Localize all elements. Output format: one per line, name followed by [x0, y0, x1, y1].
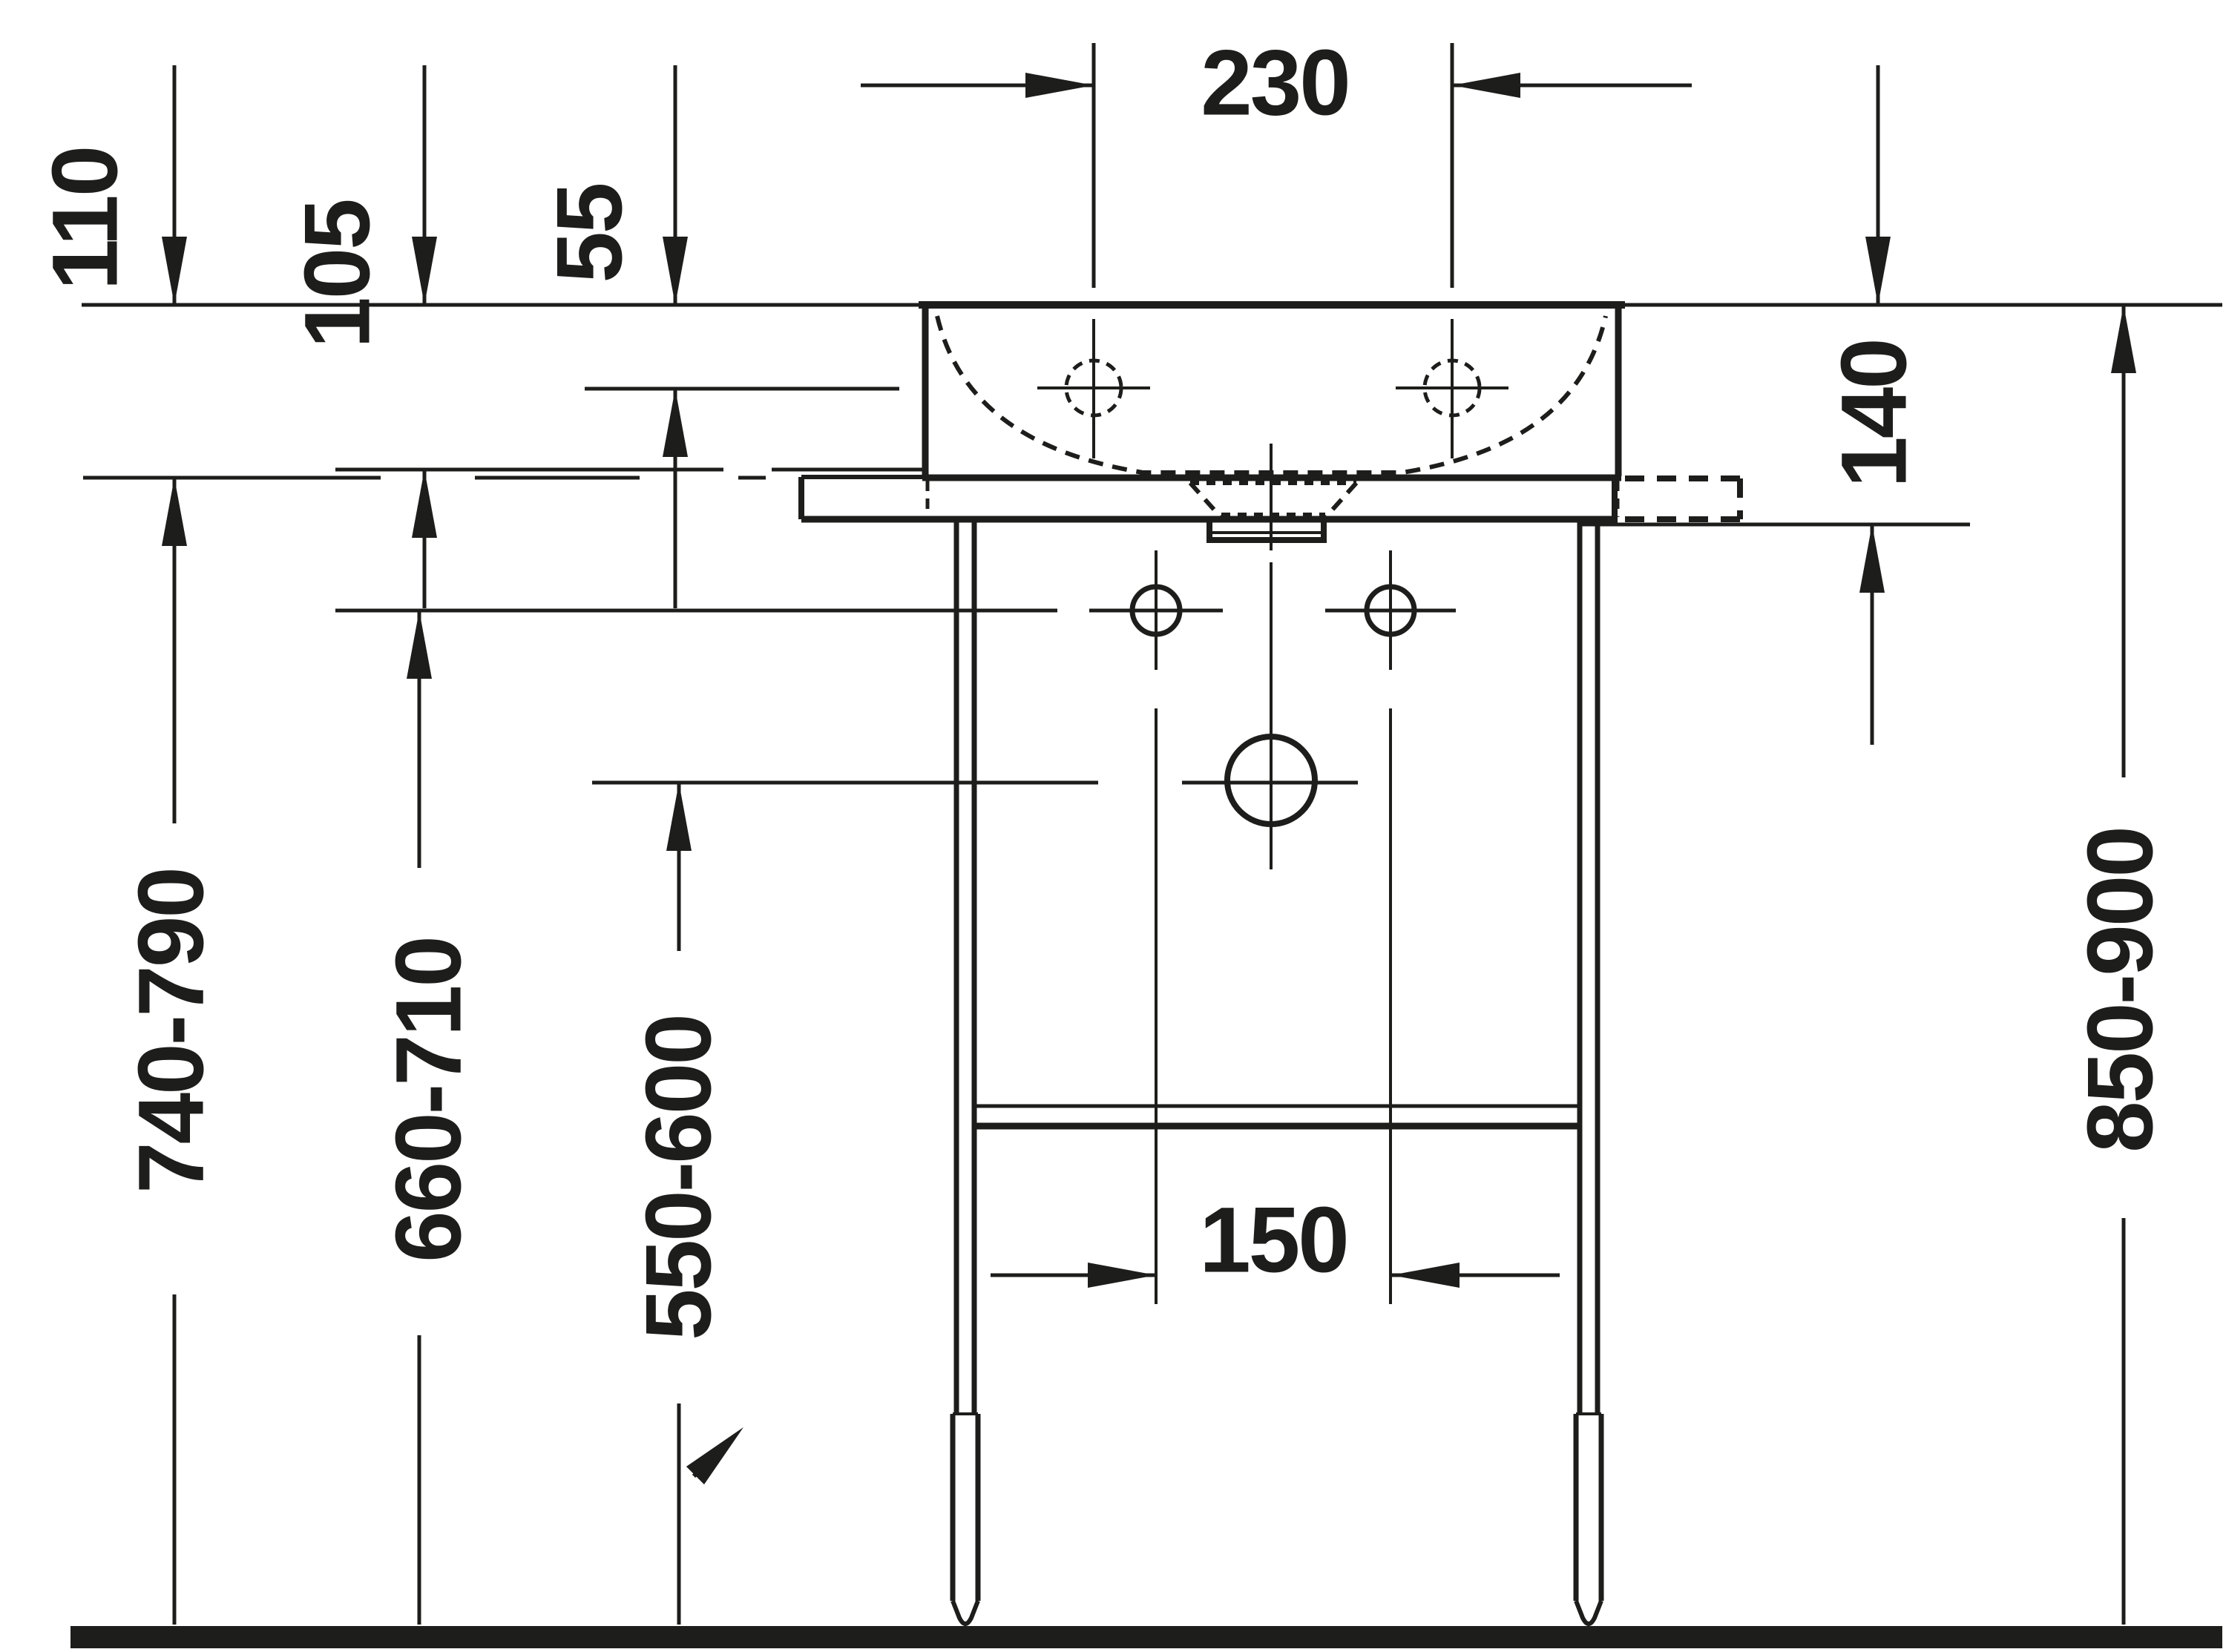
- dim-110-label: 110: [34, 148, 137, 291]
- dimension-55: 55: [539, 65, 689, 608]
- dim-550-600-label: 550-600: [628, 1016, 731, 1340]
- floor-line: [70, 1626, 2222, 1648]
- dim-850-900-label: 850-900: [2069, 828, 2173, 1153]
- drawing-stage: 110 105 55 230 140 850-900: [0, 0, 2226, 1652]
- fixing-hole-right: [1367, 550, 1414, 1304]
- dim-230-right-arrow: [1025, 73, 1094, 98]
- dim-850-900-up-arrow: [2111, 305, 2136, 373]
- holes: [1132, 444, 1414, 1304]
- dim-55-down-arrow: [663, 237, 688, 305]
- dimension-230: 230: [861, 32, 1692, 289]
- drain-outlet: [1227, 444, 1315, 869]
- dim-550-600-diagonal-pointer-arrow: [686, 1418, 752, 1484]
- dim-150-right-arrow: [1088, 1263, 1156, 1288]
- dim-150-left-arrow: [1391, 1263, 1460, 1288]
- dim-55-up-arrow: [663, 389, 688, 457]
- dim-105-down-arrow: [412, 237, 437, 305]
- dim-740-790-label: 740-790: [120, 869, 223, 1194]
- dim-105-label: 105: [286, 200, 390, 349]
- faucet-hole-left: [1037, 319, 1150, 458]
- console-plate-extension-dashed: [1625, 478, 1740, 519]
- drain-funnel-right-dashed: [1325, 483, 1356, 518]
- faucet-hole-right: [1396, 319, 1508, 458]
- dimension-660-710: 660-710: [378, 611, 481, 1625]
- dim-140-down-arrow: [1865, 237, 1891, 305]
- dimension-105: 105: [286, 65, 438, 608]
- dimension-140: 140: [1823, 65, 1926, 745]
- dimension-550-600: 550-600: [628, 783, 753, 1625]
- washbasin-dimension-drawing: 110 105 55 230 140 850-900: [0, 0, 2226, 1652]
- console-leg-right: [1576, 522, 1601, 1624]
- leg-right-foot-tip: [1576, 1601, 1601, 1624]
- dimension-850-900: 850-900: [2069, 305, 2173, 1625]
- dim-55-label: 55: [539, 184, 642, 283]
- fixing-hole-left: [1132, 550, 1180, 1304]
- dim-230-label: 230: [1201, 32, 1349, 135]
- crossbar: [976, 1106, 1577, 1126]
- dim-140-label: 140: [1823, 340, 1926, 488]
- dim-140-up-arrow: [1859, 524, 1885, 593]
- dim-105-up-arrow: [412, 470, 437, 538]
- console-frame: [953, 522, 1601, 1624]
- dim-230-left-arrow: [1452, 73, 1520, 98]
- dimension-150: 150: [991, 1189, 1560, 1292]
- dim-150-label: 150: [1199, 1189, 1347, 1292]
- drain-funnel-left-dashed: [1190, 483, 1221, 518]
- leg-left-foot-tip: [953, 1601, 978, 1624]
- dimension-740-790: 740-790: [120, 478, 223, 1625]
- drain-funnel-hidden: [1190, 483, 1356, 518]
- dim-110-down-arrow: [162, 237, 187, 305]
- dim-660-710-label: 660-710: [378, 938, 481, 1263]
- console-leg-left: [953, 522, 978, 1624]
